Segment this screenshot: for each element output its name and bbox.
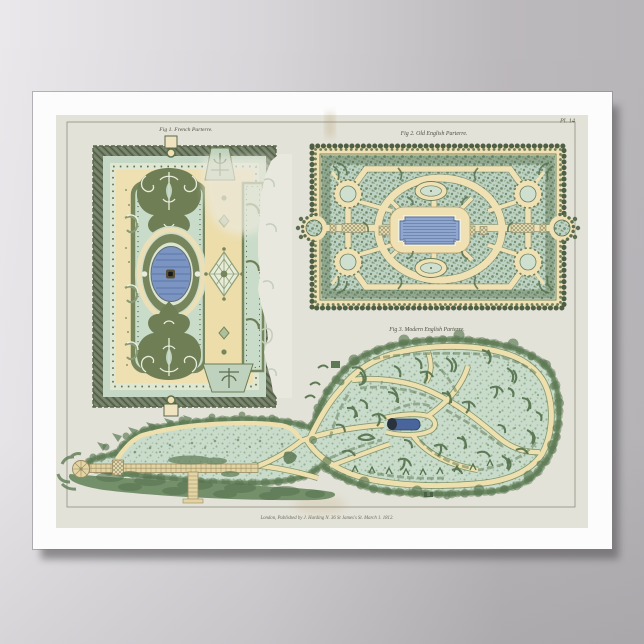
svg-text:Fig 2. Old English Parterre.: Fig 2. Old English Parterre.: [400, 131, 468, 137]
svg-text:London, Published by J. Hardin: London, Published by J. Harding N. 36 St…: [259, 516, 393, 521]
svg-text:Fig 3. Modern English Parterre: Fig 3. Modern English Parterre.: [388, 327, 464, 333]
svg-text:Fig 1. French Parterre.: Fig 1. French Parterre.: [158, 127, 212, 133]
svg-text:Pl. 14: Pl. 14: [559, 118, 575, 125]
